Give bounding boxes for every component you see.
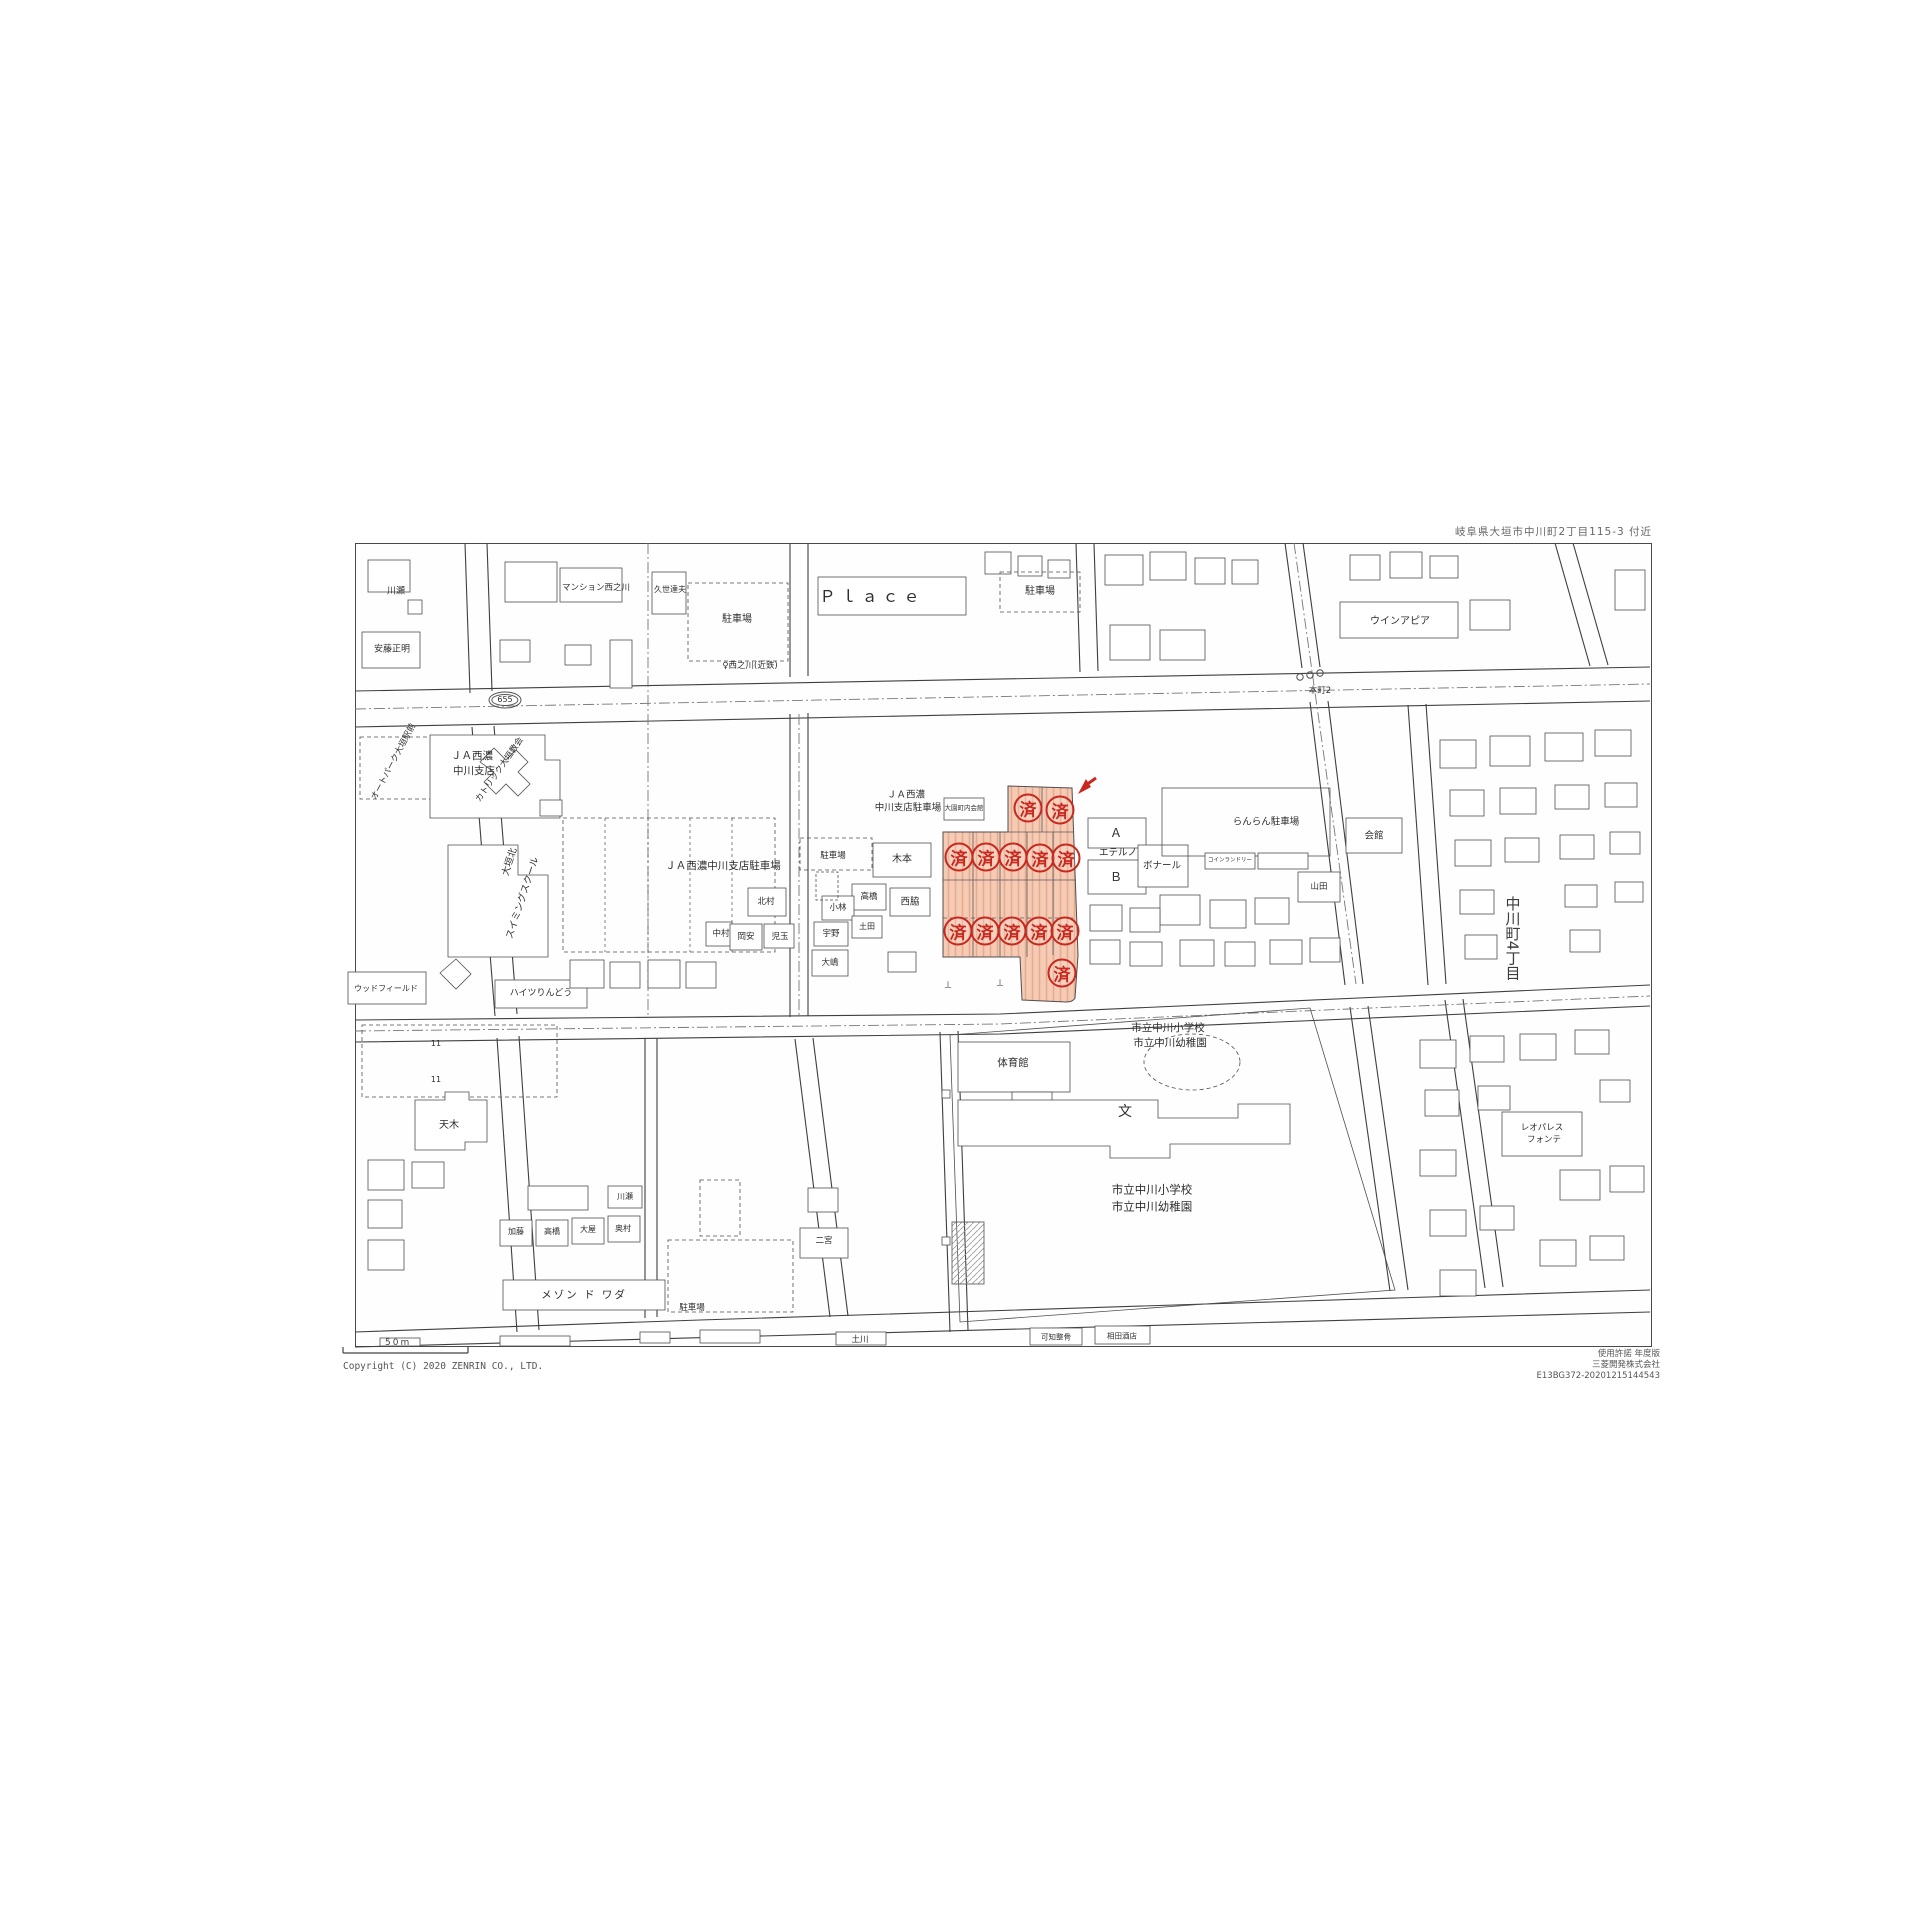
district-label: 中川町4丁目	[1505, 896, 1520, 981]
completed-stamp: 済	[945, 843, 974, 872]
map-label: 体育館	[997, 1058, 1029, 1069]
map-label: 可知整骨	[1041, 1333, 1071, 1341]
completed-stamp: 済	[1052, 844, 1081, 873]
footer-line-1: 使用許諾 年度版	[1537, 1349, 1660, 1360]
scale-label: 50m	[385, 1338, 411, 1348]
zenrin-map-page: 岐阜県大垣市中川町2丁目115-3 付近	[0, 0, 1920, 1920]
map-label: ウッドフィールド	[354, 985, 418, 993]
map-label: 加藤	[508, 1228, 524, 1236]
map-label: 山田	[1310, 883, 1327, 892]
map-label: 11	[431, 1040, 441, 1048]
map-label: メゾン ド ワダ	[541, 1290, 627, 1301]
map-label: らんらん駐車場	[1233, 817, 1300, 827]
map-label: エテルノ	[1099, 848, 1137, 858]
map-label: 大嶋	[821, 959, 838, 968]
map-label: ウインアピア	[1370, 617, 1430, 627]
completed-stamp: 済	[1014, 794, 1043, 823]
map-label: 中川支店駐車場	[875, 803, 942, 813]
completed-stamp: 済	[998, 917, 1027, 946]
map-label: 駐車場	[820, 852, 846, 861]
map-label: 児玉	[771, 933, 788, 942]
map-label: 北村	[757, 898, 774, 907]
map-label: 安藤正明	[374, 646, 410, 655]
map-label: 西脇	[900, 897, 919, 907]
map-label: 奥村	[615, 1225, 631, 1233]
map-label: 相田酒店	[1107, 1332, 1137, 1340]
completed-stamp: 済	[999, 843, 1028, 872]
map-label: コインランドリー	[1208, 858, 1252, 864]
footer-line-3: E13BG372-20201215144543	[1537, 1371, 1660, 1382]
map-label: 市立中川小学校	[1112, 1184, 1193, 1196]
map-label: 駐車場	[1025, 587, 1055, 597]
completed-stamp: 済	[972, 843, 1001, 872]
map-label: Ｂ	[1110, 871, 1122, 883]
completed-stamp: 済	[1025, 917, 1054, 946]
map-label: ボナール	[1143, 861, 1181, 871]
map-canvas	[0, 0, 1920, 1920]
map-label: ＪＡ西濃中川支店駐車場	[665, 861, 781, 872]
label-place: Ｐｌａｃｅ	[819, 589, 924, 605]
map-label: ⊥	[944, 982, 952, 991]
map-label: 市立中川幼稚園	[1112, 1201, 1193, 1213]
map-label: 天木	[439, 1121, 459, 1131]
completed-stamp: 済	[971, 917, 1000, 946]
map-label: Ａ	[1110, 827, 1122, 839]
intersection-label: 本町2	[1309, 687, 1331, 696]
completed-stamp: 済	[944, 917, 973, 946]
map-area-title: 岐阜県大垣市中川町2丁目115-3 付近	[1455, 524, 1652, 539]
map-label: 大園町内会館	[945, 805, 984, 812]
map-label: 高橋	[860, 893, 877, 902]
footer-line-2: 三菱開発株式会社	[1537, 1360, 1660, 1371]
map-label: 会館	[1364, 831, 1383, 841]
map-label: ハイツりんどう	[510, 990, 573, 999]
map-label: 駐車場	[722, 615, 752, 625]
map-label: 宇野	[822, 930, 839, 939]
completed-stamp: 済	[1051, 917, 1080, 946]
map-label: 中村	[712, 930, 729, 939]
completed-stamp: 済	[1046, 796, 1075, 825]
completed-stamp: 済	[1048, 959, 1077, 988]
bus-stop-label: ♀西之川(近鉄)	[722, 662, 777, 671]
pointer-arrow-icon	[1078, 778, 1096, 794]
map-label: マンション西之川	[562, 584, 630, 593]
map-label: 土田	[859, 923, 875, 931]
map-label: 11	[431, 1076, 441, 1084]
map-label: 高橋	[544, 1228, 560, 1236]
completed-stamp: 済	[1026, 844, 1055, 873]
map-label: 小林	[829, 904, 846, 913]
map-label: 川瀬	[617, 1193, 633, 1201]
route-marker: 655	[491, 694, 518, 706]
map-label: 市立中川小学校	[1131, 1023, 1205, 1034]
map-label: 市立中川幼稚園	[1133, 1038, 1207, 1049]
map-label: 川瀬	[387, 588, 405, 597]
map-label: フォンテ	[1527, 1136, 1561, 1145]
print-footer: 使用許諾 年度版 三菱開発株式会社 E13BG372-2020121514454…	[1537, 1349, 1660, 1383]
map-label: レオパレス	[1521, 1124, 1564, 1133]
map-label: 駐車場	[679, 1304, 705, 1313]
map-label: ⊥	[996, 980, 1004, 989]
map-label: 二宮	[815, 1237, 832, 1246]
map-label: 大屋	[580, 1226, 596, 1234]
school-symbol: 文	[1118, 1105, 1132, 1119]
map-label: 久世達夫	[654, 586, 686, 594]
map-label: ＪＡ西濃	[451, 751, 493, 762]
copyright-text: Copyright (C) 2020 ZENRIN CO., LTD.	[343, 1361, 543, 1372]
map-label: 木本	[892, 855, 912, 865]
map-label: ＪＡ西濃	[887, 790, 925, 800]
map-label: 岡安	[737, 933, 754, 942]
map-label: 土川	[851, 1336, 868, 1345]
